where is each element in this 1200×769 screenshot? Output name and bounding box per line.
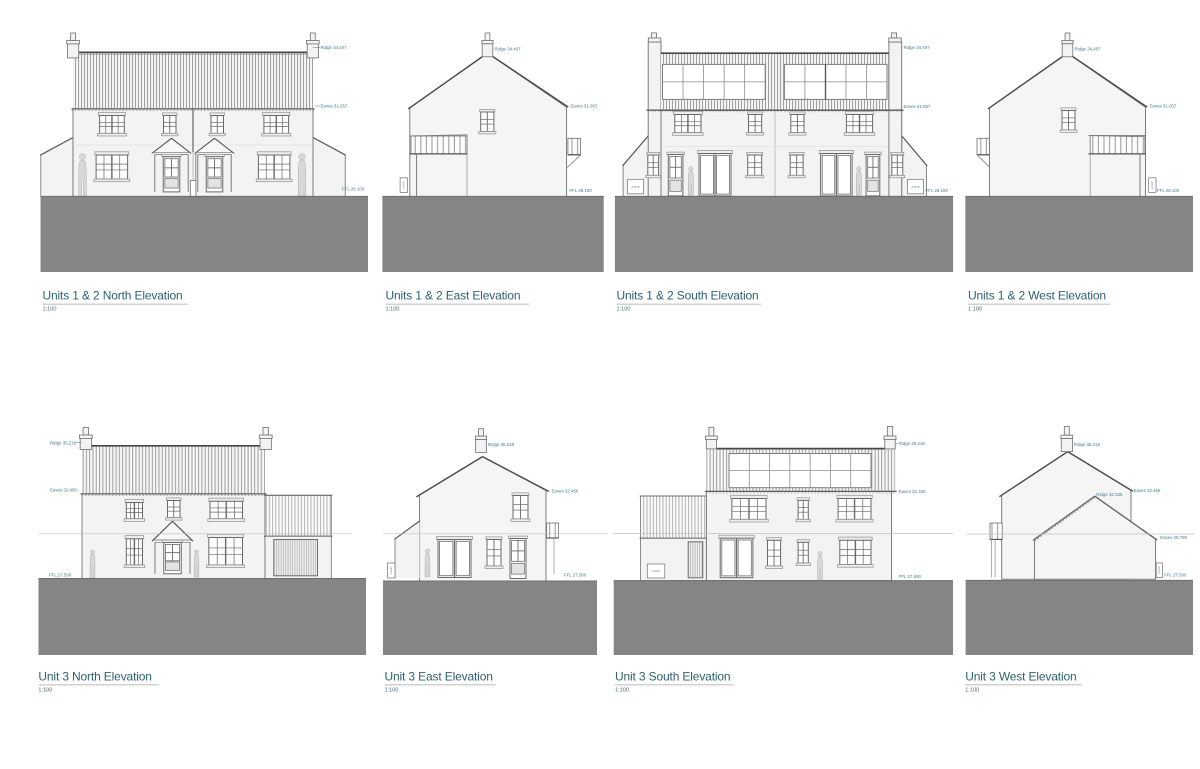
svg-text:Ridge 32.335: Ridge 32.335 bbox=[1096, 492, 1123, 497]
svg-text:Unit 3 East Elevation: Unit 3 East Elevation bbox=[385, 669, 493, 683]
svg-text:Ridge 35.218: Ridge 35.218 bbox=[488, 442, 515, 447]
svg-text:1:100: 1:100 bbox=[968, 307, 982, 313]
svg-text:Eaves 32.456: Eaves 32.456 bbox=[899, 489, 926, 494]
svg-text:Unit 3 West Elevation: Unit 3 West Elevation bbox=[965, 669, 1076, 683]
svg-text:Eaves 31.057: Eaves 31.057 bbox=[904, 104, 931, 109]
svg-text:Ridge 34.407: Ridge 34.407 bbox=[904, 45, 931, 50]
svg-text:FFL 27.500: FFL 27.500 bbox=[564, 573, 587, 578]
svg-text:1:100: 1:100 bbox=[615, 687, 629, 693]
svg-text:Eaves 31.057: Eaves 31.057 bbox=[571, 103, 598, 108]
svg-text:ASHP: ASHP bbox=[389, 566, 393, 574]
svg-text:Units 1 & 2 East Elevation: Units 1 & 2 East Elevation bbox=[386, 289, 521, 303]
svg-text:Eaves 32.456: Eaves 32.456 bbox=[552, 488, 579, 493]
svg-text:Eaves 31.057: Eaves 31.057 bbox=[1150, 103, 1177, 108]
svg-text:Units 1 & 2 North Elevation: Units 1 & 2 North Elevation bbox=[43, 289, 183, 303]
svg-text:Eaves 29.795: Eaves 29.795 bbox=[1160, 535, 1187, 540]
svg-text:Ridge 35.218: Ridge 35.218 bbox=[50, 440, 77, 445]
svg-text:Eaves 32.456: Eaves 32.456 bbox=[50, 488, 77, 493]
svg-text:1:100: 1:100 bbox=[38, 687, 52, 693]
svg-text:ASHP: ASHP bbox=[402, 181, 406, 189]
svg-text:Ridge 34.407: Ridge 34.407 bbox=[321, 45, 348, 50]
svg-text:ASHP: ASHP bbox=[631, 185, 639, 189]
svg-text:Units 1 & 2 South Elevation: Units 1 & 2 South Elevation bbox=[617, 289, 759, 303]
svg-text:1:100: 1:100 bbox=[965, 687, 979, 693]
svg-text:FFL 28.100: FFL 28.100 bbox=[342, 187, 365, 192]
svg-text:Unit 3 North Elevation: Unit 3 North Elevation bbox=[38, 669, 151, 683]
svg-text:FFL 27.500: FFL 27.500 bbox=[1164, 573, 1187, 578]
svg-text:Ridge 34.407: Ridge 34.407 bbox=[1075, 46, 1102, 51]
svg-text:Units 1 & 2 West Elevation: Units 1 & 2 West Elevation bbox=[968, 289, 1106, 303]
svg-text:1:100: 1:100 bbox=[617, 307, 631, 313]
svg-text:1:100: 1:100 bbox=[43, 307, 57, 313]
svg-text:Eaves 32.456: Eaves 32.456 bbox=[1134, 488, 1161, 493]
svg-text:FFL 28.100: FFL 28.100 bbox=[926, 188, 949, 193]
svg-text:Eaves 31.057: Eaves 31.057 bbox=[321, 103, 348, 108]
svg-text:Unit 3 South Elevation: Unit 3 South Elevation bbox=[615, 669, 730, 683]
svg-text:FFL 27.500: FFL 27.500 bbox=[899, 574, 922, 579]
svg-text:1:100: 1:100 bbox=[386, 307, 400, 313]
svg-text:ASHP: ASHP bbox=[1150, 181, 1154, 189]
svg-text:Ridge 34.407: Ridge 34.407 bbox=[495, 46, 522, 51]
svg-text:FFL 28.100: FFL 28.100 bbox=[1157, 188, 1180, 193]
svg-text:ASHP: ASHP bbox=[652, 569, 660, 573]
svg-text:Ridge 35.218: Ridge 35.218 bbox=[899, 441, 926, 446]
svg-text:ASHP: ASHP bbox=[1157, 566, 1161, 574]
svg-text:FFL 28.100: FFL 28.100 bbox=[570, 188, 593, 193]
svg-text:ASHP: ASHP bbox=[911, 185, 919, 189]
svg-text:FFL 27.500: FFL 27.500 bbox=[49, 573, 72, 578]
svg-text:1:100: 1:100 bbox=[385, 687, 399, 693]
svg-text:Ridge 35.218: Ridge 35.218 bbox=[1074, 442, 1101, 447]
